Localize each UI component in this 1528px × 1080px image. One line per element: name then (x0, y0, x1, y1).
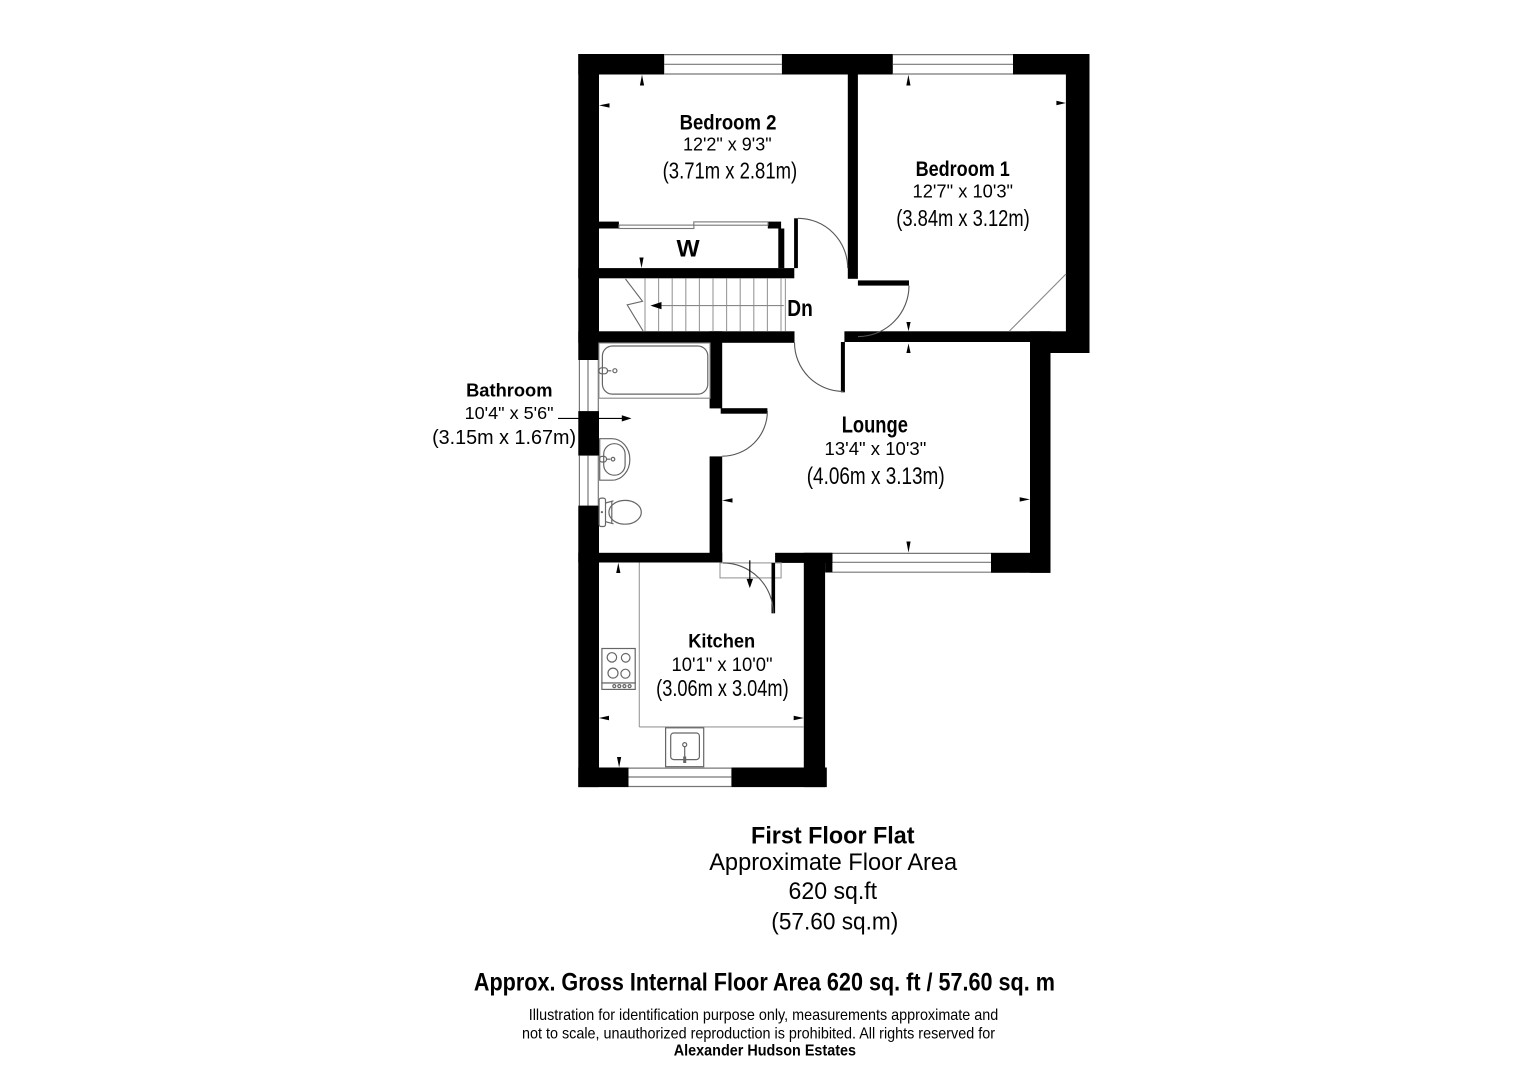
svg-text:not to scale, unauthorized rep: not to scale, unauthorized reproduction … (522, 1026, 996, 1043)
svg-text:Bathroom: Bathroom (466, 381, 552, 401)
svg-text:(3.71m x 2.81m): (3.71m x 2.81m) (663, 157, 798, 183)
svg-text:W: W (676, 236, 700, 263)
svg-text:12'7" x 10'3": 12'7" x 10'3" (913, 182, 1014, 202)
svg-text:13'4" x 10'3": 13'4" x 10'3" (825, 438, 927, 459)
svg-text:Lounge: Lounge (842, 412, 908, 438)
svg-text:(57.60 sq.m): (57.60 sq.m) (771, 909, 898, 936)
svg-text:Alexander Hudson Estates: Alexander Hudson Estates (674, 1043, 856, 1060)
svg-text:Dn: Dn (787, 295, 813, 321)
svg-text:10'1" x 10'0": 10'1" x 10'0" (671, 655, 772, 676)
svg-text:Illustration for identificatio: Illustration for identification purpose … (529, 1007, 999, 1024)
svg-text:Bedroom 1: Bedroom 1 (916, 157, 1010, 181)
svg-text:Approx. Gross Internal Floor A: Approx. Gross Internal Floor Area 620 sq… (474, 969, 1055, 997)
svg-text:10'4" x 5'6": 10'4" x 5'6" (465, 403, 554, 423)
svg-text:Approximate Floor Area: Approximate Floor Area (709, 849, 958, 876)
svg-text:620 sq.ft: 620 sq.ft (789, 878, 878, 905)
svg-text:Bedroom 2: Bedroom 2 (680, 110, 777, 134)
svg-text:(4.06m x 3.13m): (4.06m x 3.13m) (807, 463, 945, 490)
svg-text:(3.06m x 3.04m): (3.06m x 3.04m) (656, 675, 789, 701)
svg-text:12'2" x 9'3": 12'2" x 9'3" (683, 134, 772, 154)
svg-text:First Floor Flat: First Floor Flat (751, 823, 915, 850)
svg-text:(3.84m x 3.12m): (3.84m x 3.12m) (896, 205, 1030, 231)
svg-text:(3.15m x 1.67m): (3.15m x 1.67m) (432, 426, 576, 449)
svg-text:Kitchen: Kitchen (688, 631, 755, 653)
